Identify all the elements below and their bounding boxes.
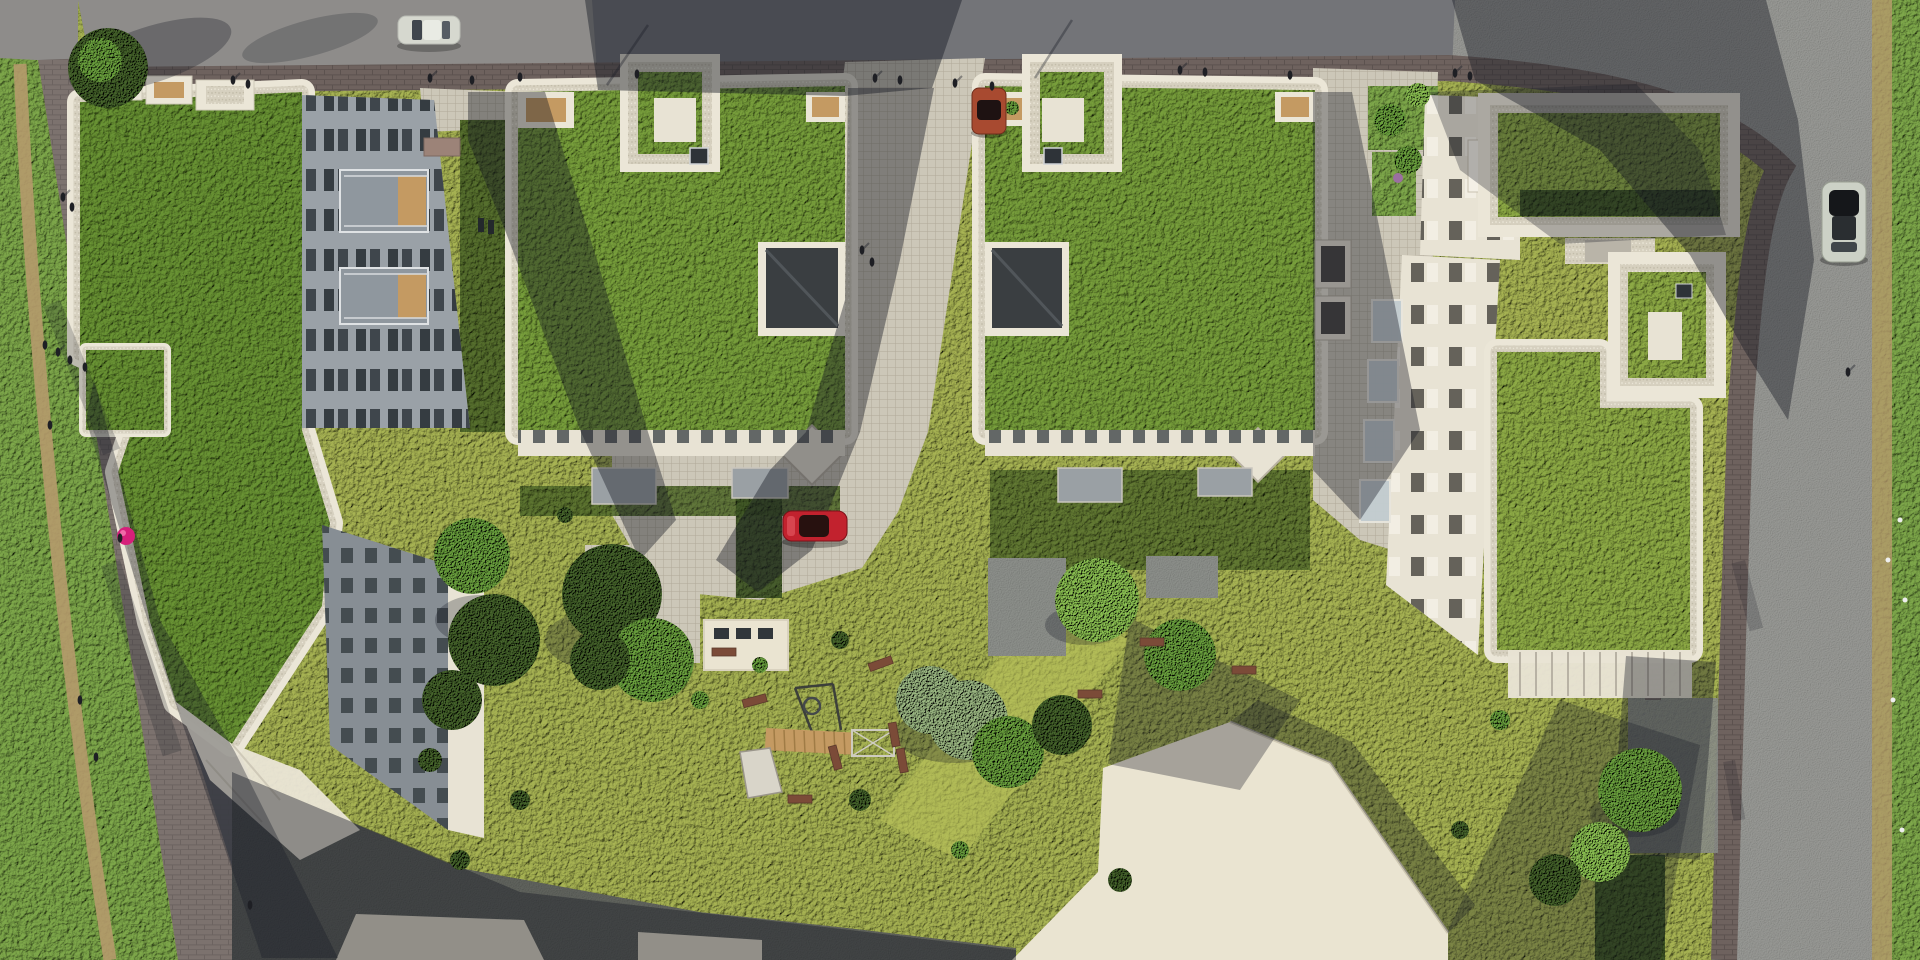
pedestrian — [118, 533, 123, 542]
northwest-corner-pavement — [0, 0, 78, 60]
pedestrian — [470, 75, 475, 84]
shrub — [1374, 104, 1406, 136]
bench — [788, 795, 812, 803]
aerial-rendering-stage — [0, 0, 1920, 960]
wildflower — [1898, 518, 1903, 523]
pedestrian — [518, 72, 523, 81]
wildflower — [1900, 828, 1905, 833]
car-rear-window — [442, 21, 450, 39]
entry-canopy — [1058, 468, 1122, 502]
shadow-north-street — [585, 0, 962, 96]
street-tree-crown — [78, 38, 122, 82]
wooden-bridge — [765, 728, 852, 754]
wildflower — [1891, 698, 1896, 703]
pitched-roof-structure — [985, 242, 1069, 336]
car-north-street — [397, 16, 461, 52]
terrace-floor — [654, 98, 696, 142]
courtyard-patio-b — [1146, 556, 1218, 598]
pedestrian — [1288, 70, 1293, 79]
pedestrian — [1178, 65, 1183, 74]
bush — [691, 691, 709, 709]
wildflower — [1886, 558, 1891, 563]
courtyard-patio-a — [988, 558, 1066, 656]
pedestrian — [231, 75, 236, 84]
pavilion-core — [1648, 312, 1682, 360]
car-roof — [423, 20, 441, 40]
rooftop-terrace-court — [1022, 54, 1122, 172]
pedestrian — [428, 73, 433, 82]
bush — [418, 748, 442, 772]
bush — [557, 507, 573, 523]
bench-pad — [424, 138, 460, 156]
car-rear-window — [1831, 242, 1857, 252]
pitched-roof-structure — [758, 242, 845, 336]
pedestrian — [78, 695, 83, 704]
pedestrian — [860, 245, 865, 254]
bush — [450, 850, 470, 870]
tree — [570, 630, 630, 690]
car-cabin — [799, 515, 829, 537]
balcony — [340, 268, 428, 324]
car-hood — [787, 516, 795, 536]
facade-windows — [985, 430, 1315, 456]
pedestrian — [70, 202, 75, 211]
bush — [752, 657, 768, 673]
bush — [1108, 868, 1132, 892]
bench — [1232, 666, 1256, 674]
flower-patch — [1393, 173, 1403, 183]
terrace-plant — [1005, 101, 1019, 115]
bush — [1451, 821, 1469, 839]
bush — [849, 789, 871, 811]
tree — [1144, 619, 1216, 691]
terrace-wood-deck — [1281, 97, 1309, 117]
shrub — [1406, 83, 1430, 107]
pedestrian — [1846, 367, 1851, 376]
courtyard-shed — [704, 620, 788, 670]
bicycle — [488, 220, 494, 234]
pedestrian — [953, 78, 958, 87]
car-courtyard — [782, 511, 848, 548]
shed-skylight — [758, 628, 773, 639]
car-roof-glass — [1832, 216, 1856, 240]
east-dirt-path — [1872, 0, 1892, 960]
terrace-wood-deck — [154, 82, 184, 98]
hedge-lawn-south-b — [990, 470, 1310, 570]
tree — [1032, 695, 1092, 755]
pedestrian — [898, 75, 903, 84]
pedestrian — [1453, 68, 1458, 77]
pedestrian — [873, 73, 878, 82]
balcony — [340, 170, 428, 232]
terrace-gravel — [206, 86, 244, 104]
pedestrian — [1468, 71, 1473, 80]
bench — [1078, 690, 1102, 698]
pedestrian — [48, 420, 53, 429]
bush — [1490, 710, 1510, 730]
pedestrian — [43, 340, 48, 349]
pedestrian — [94, 752, 99, 761]
pedestrian — [635, 69, 640, 78]
skylight — [1044, 148, 1062, 164]
pedestrian — [990, 81, 995, 90]
entry-canopy — [1198, 468, 1252, 496]
pedestrian — [56, 347, 61, 356]
pedestrian — [61, 192, 66, 201]
terrace-floor — [1042, 98, 1084, 142]
car-hood-roof — [1829, 190, 1859, 216]
pedestrian — [1203, 67, 1208, 76]
car-north-kerb — [971, 88, 1007, 138]
building-north-b — [985, 54, 1351, 502]
skylight — [1676, 284, 1692, 298]
shed-skylight — [736, 628, 751, 639]
wildflower — [1903, 598, 1908, 603]
terrace-wood-deck — [812, 97, 839, 117]
car-cabin — [977, 100, 1001, 120]
shrub — [1394, 146, 1422, 174]
bench — [1140, 638, 1164, 646]
aerial-site-plan — [0, 0, 1920, 960]
pedestrian — [68, 355, 73, 364]
bench — [712, 648, 736, 656]
pedestrian — [248, 900, 253, 909]
tree — [434, 518, 510, 594]
tree — [1598, 748, 1682, 832]
pedestrian — [83, 362, 88, 371]
pedestrian — [246, 79, 251, 88]
bush — [510, 790, 530, 810]
tree — [422, 670, 482, 730]
tree — [1055, 558, 1139, 642]
bicycle — [478, 218, 484, 232]
car-east-street — [1820, 182, 1868, 266]
bush — [831, 631, 849, 649]
tree — [1529, 854, 1581, 906]
car-windshield — [412, 20, 422, 40]
skylight — [690, 148, 708, 164]
bush — [951, 841, 969, 859]
shed-skylight — [714, 628, 729, 639]
pedestrian — [870, 257, 875, 266]
